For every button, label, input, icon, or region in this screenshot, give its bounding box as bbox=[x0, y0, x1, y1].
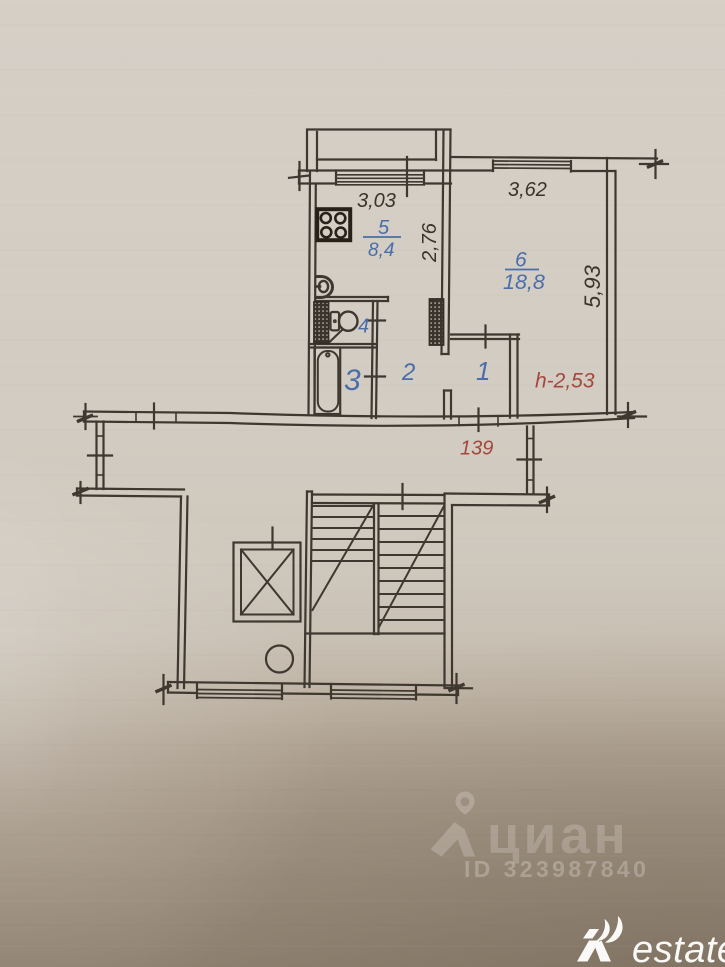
svg-text:estate: estate bbox=[632, 929, 725, 967]
svg-text:ID 323987840: ID 323987840 bbox=[464, 856, 649, 882]
